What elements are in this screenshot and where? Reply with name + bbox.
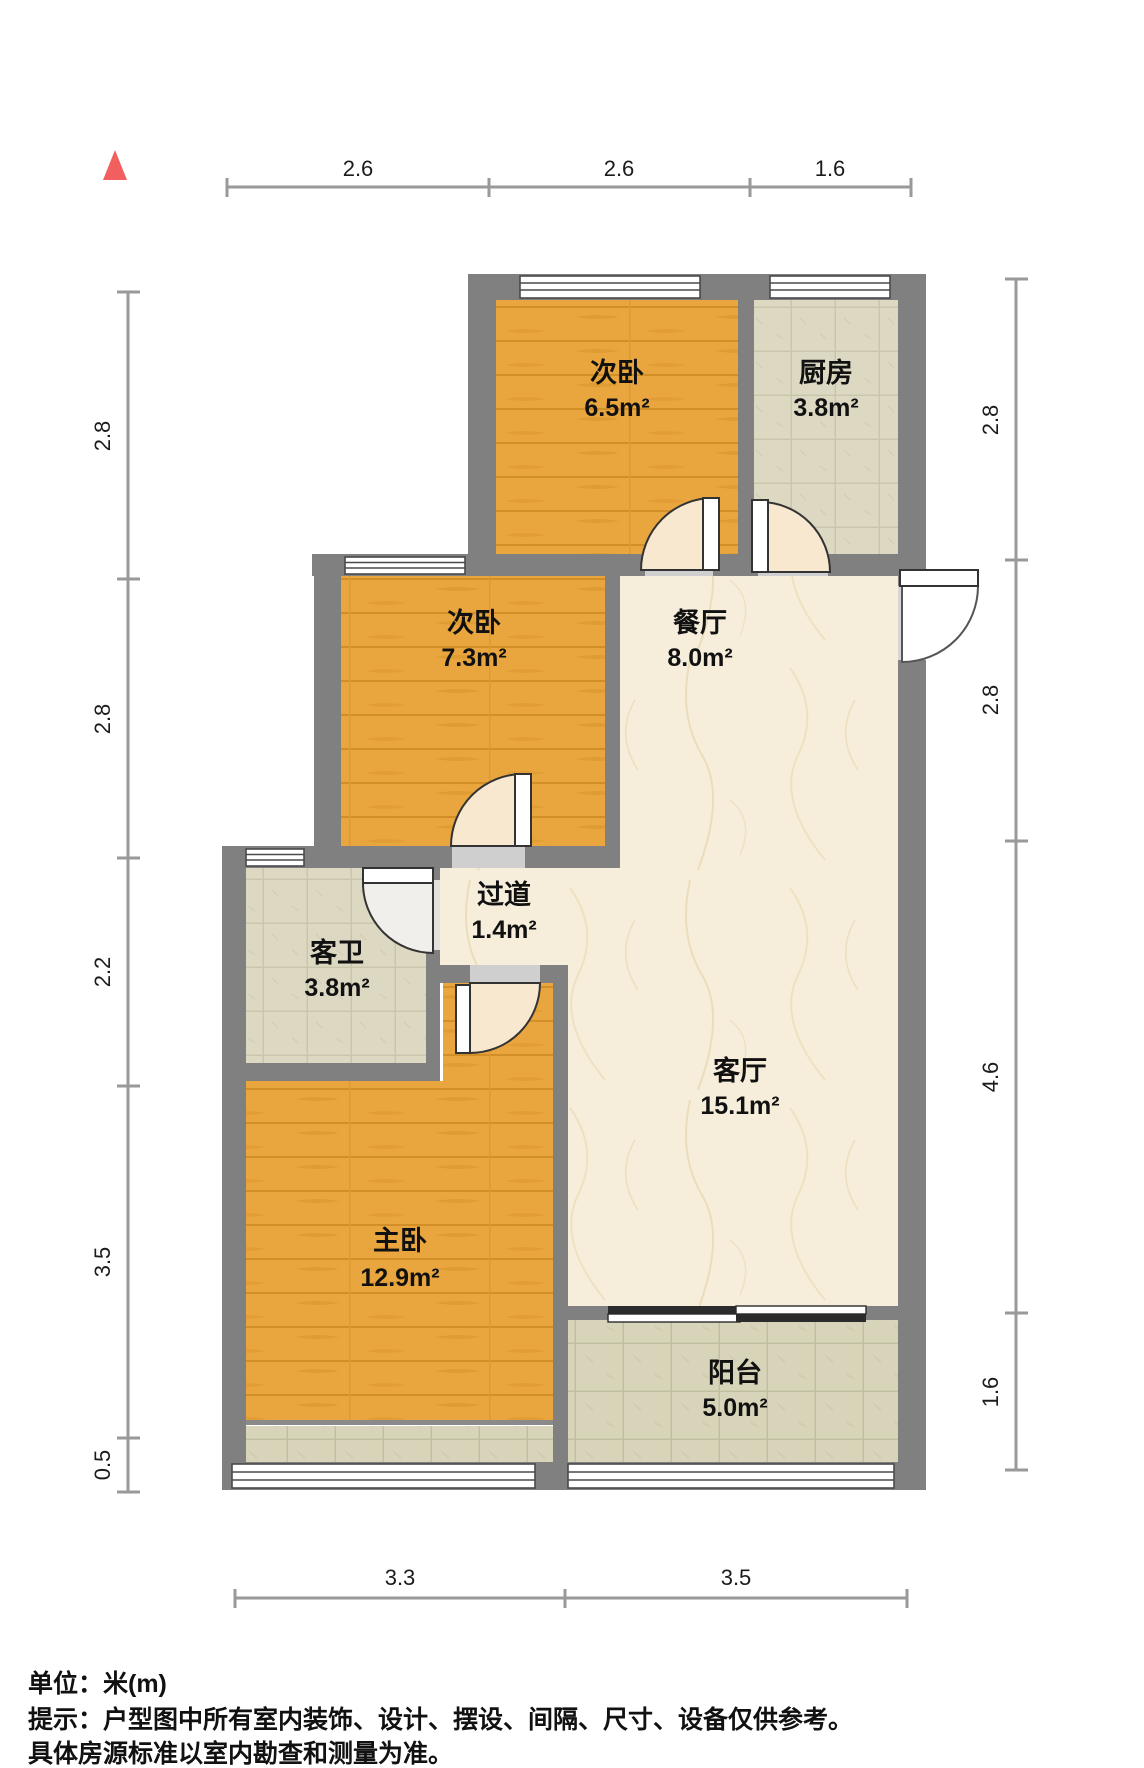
room-area-hallway: 1.4m² [471, 916, 536, 944]
north-arrow-icon [103, 150, 127, 180]
dimension-bottom: 3.3 3.5 [235, 1565, 907, 1608]
master-strip-separator [246, 1420, 553, 1425]
dim-right-3: 4.6 [978, 1062, 1003, 1093]
wall-master-right [553, 965, 568, 1490]
dim-top-1: 2.6 [343, 156, 374, 181]
room-label-dining-room: 餐厅 [673, 608, 727, 638]
room-area-guest-bathroom: 3.8m² [304, 974, 369, 1002]
bottom-strip-floor [246, 1426, 553, 1462]
dim-right-2: 2.8 [978, 685, 1003, 716]
kitchen-window [770, 276, 890, 298]
balcony-sliding-door [608, 1306, 866, 1322]
room-label-bedroom-second-mid: 次卧 [447, 608, 501, 638]
dim-right-1: 2.8 [978, 405, 1003, 436]
floorplan-canvas: 次卧 6.5m² 厨房 3.8m² 次卧 7.3m² 餐厅 8.0m² 过道 1… [0, 0, 1144, 1768]
unit-note: 单位：米(m) [28, 1669, 167, 1698]
wall-right-exterior [898, 274, 926, 1490]
room-label-master-bedroom: 主卧 [373, 1226, 427, 1256]
disclaimer-line-2: 具体房源标准以室内勘查和测量为准。 [28, 1739, 453, 1768]
dim-left-5: 0.5 [90, 1450, 115, 1481]
dim-bottom-1: 3.3 [385, 1565, 416, 1590]
footer-notes: 单位：米(m) 提示：户型图中所有室内装饰、设计、摆设、间隔、尺寸、设备仅供参考… [28, 1669, 853, 1768]
room-area-bedroom-second-mid: 7.3m² [441, 644, 506, 672]
wall-bathroom-bottom [222, 1063, 440, 1081]
wall-left-exterior [222, 846, 246, 1490]
bedroom-mid-door-opening [452, 846, 525, 868]
balcony-railing-window [568, 1464, 894, 1488]
room-label-balcony: 阳台 [708, 1357, 762, 1388]
dim-top-2: 2.6 [604, 156, 635, 181]
wall-bedroom-mid-right [605, 554, 620, 868]
dim-bottom-2: 3.5 [721, 1565, 752, 1590]
room-area-kitchen: 3.8m² [793, 394, 858, 422]
dim-left-2: 2.8 [90, 704, 115, 735]
dimension-top: 2.6 2.6 1.6 [227, 156, 911, 197]
bedroom-top-window [520, 276, 700, 298]
bedroom-mid-window [345, 557, 465, 574]
room-area-dining-room: 8.0m² [667, 644, 732, 672]
room-label-kitchen: 厨房 [799, 358, 853, 388]
floorplan-page: 次卧 6.5m² 厨房 3.8m² 次卧 7.3m² 餐厅 8.0m² 过道 1… [0, 0, 1144, 1768]
room-area-bedroom-second-top: 6.5m² [584, 394, 649, 422]
entry-door [900, 570, 978, 662]
dim-left-4: 3.5 [90, 1247, 115, 1278]
master-door-opening [470, 965, 540, 983]
bathroom-window [246, 849, 304, 866]
room-area-living-room: 15.1m² [700, 1092, 779, 1120]
room-label-bedroom-second-top: 次卧 [590, 358, 644, 388]
wall-bedroom-top-left [468, 274, 496, 576]
wall-bedroom-mid-left [314, 554, 341, 866]
dim-right-4: 1.6 [978, 1377, 1003, 1408]
room-area-balcony: 5.0m² [702, 1394, 767, 1422]
room-label-guest-bathroom: 客卫 [310, 937, 364, 968]
dim-left-1: 2.8 [90, 421, 115, 452]
balcony-floor [568, 1320, 898, 1462]
room-floors [246, 300, 898, 1462]
room-area-master-bedroom: 12.9m² [360, 1264, 439, 1292]
wall-slider-stub-right [866, 1306, 898, 1320]
wall-slider-stub-left [568, 1306, 608, 1320]
bottom-left-window [232, 1464, 535, 1488]
dimension-right: 2.8 2.8 4.6 1.6 [978, 279, 1028, 1470]
dim-top-3: 1.6 [815, 156, 846, 181]
room-label-hallway: 过道 [477, 879, 531, 910]
disclaimer-line-1: 提示：户型图中所有室内装饰、设计、摆设、间隔、尺寸、设备仅供参考。 [28, 1705, 853, 1734]
dimension-left: 2.8 2.8 2.2 3.5 0.5 [90, 292, 140, 1492]
room-label-living-room: 客厅 [713, 1055, 767, 1086]
dim-left-3: 2.2 [90, 957, 115, 988]
